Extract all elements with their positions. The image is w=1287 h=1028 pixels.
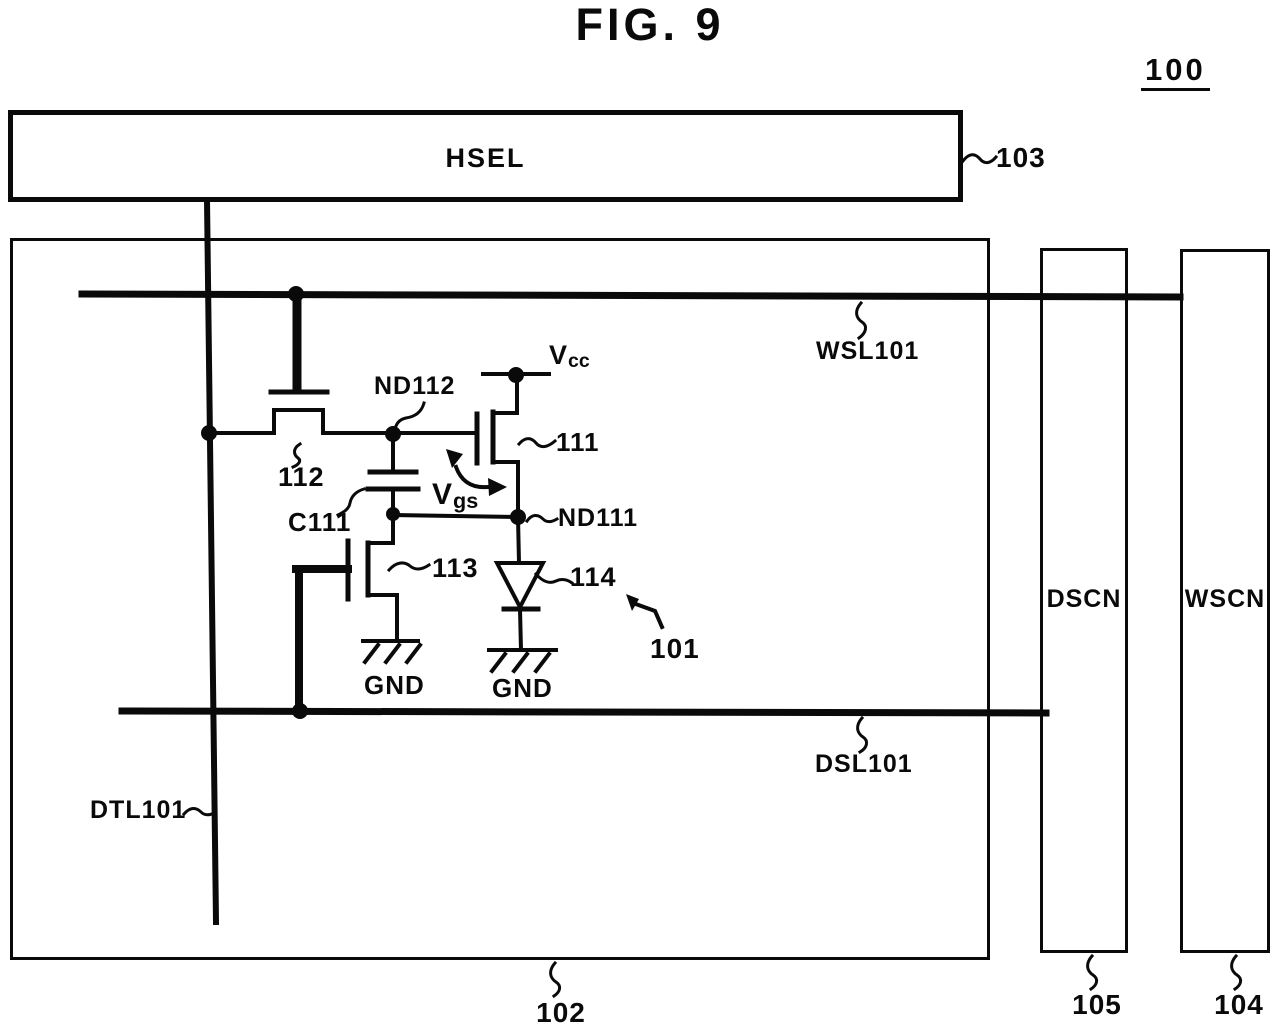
dscn-block-label: DSCN	[1040, 587, 1128, 612]
ref-101-pixel-circuit: 101	[650, 635, 700, 663]
vgs-label: Vgs	[432, 480, 478, 510]
gnd-label-left: GND	[364, 672, 425, 698]
ref-112-write-transistor: 112	[278, 464, 325, 491]
figure-title: FIG. 9	[480, 2, 820, 47]
connector-103	[963, 155, 996, 163]
ref-103: 103	[996, 144, 1046, 172]
ref-102: 102	[528, 999, 594, 1027]
hsel-block-label: HSEL	[8, 145, 963, 172]
ref-111-drive-transistor: 111	[556, 429, 600, 455]
gnd-label-right: GND	[492, 675, 553, 701]
wire-label-wsl101: WSL101	[816, 339, 919, 364]
ref-113-switch-transistor: 113	[432, 555, 479, 582]
connector-104	[1232, 956, 1241, 989]
wire-label-dtl101: DTL101	[90, 798, 186, 823]
wire-label-dsl101: DSL101	[815, 752, 913, 777]
vcc-label: Vcc	[549, 342, 590, 369]
connector-105	[1088, 956, 1097, 989]
ref-105: 105	[1064, 991, 1130, 1019]
node-label-nd111: ND111	[558, 506, 638, 531]
ref-104: 104	[1206, 991, 1272, 1019]
figure-ref-100: 100	[1141, 54, 1210, 91]
patent-figure-canvas: FIG. 9 100 HSEL 103 DSCN WSCN 105 104 10…	[0, 0, 1287, 1028]
ref-114-light-emitting-element: 114	[570, 564, 617, 591]
node-label-nd112: ND112	[374, 374, 455, 399]
connector-102	[551, 963, 560, 996]
wscn-block-label: WSCN	[1180, 587, 1270, 612]
ref-c111-capacitor: C111	[288, 509, 351, 535]
